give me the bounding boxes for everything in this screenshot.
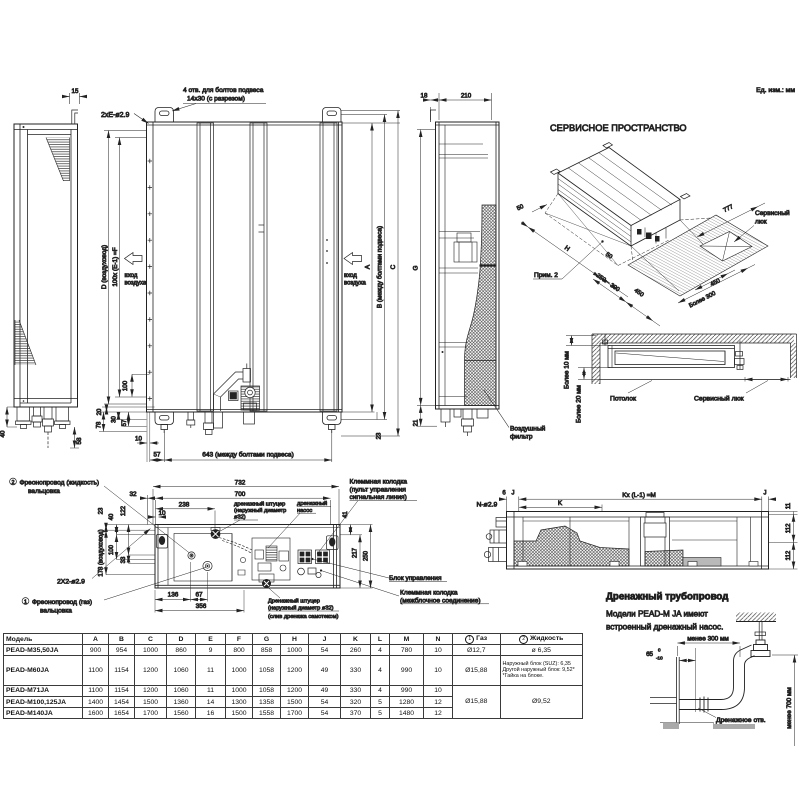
svg-text:Ед. изм.: мм: Ед. изм.: мм bbox=[756, 87, 795, 94]
svg-text:250: 250 bbox=[364, 550, 370, 561]
svg-text:Kx (L-1) =M: Kx (L-1) =M bbox=[622, 492, 656, 499]
svg-text:Фреонопровод (газ): Фреонопровод (газ) bbox=[32, 599, 92, 606]
svg-text:100: 100 bbox=[109, 544, 115, 555]
svg-text:65: 65 bbox=[646, 651, 653, 658]
svg-text:18: 18 bbox=[421, 93, 428, 100]
svg-text:57: 57 bbox=[122, 419, 128, 426]
svg-text:122: 122 bbox=[121, 505, 127, 516]
svg-text:57: 57 bbox=[154, 452, 161, 459]
svg-text:21: 21 bbox=[414, 419, 420, 426]
svg-text:B (между болтами подвеса): B (между болтами подвеса) bbox=[376, 226, 384, 308]
svg-text:217: 217 bbox=[353, 547, 359, 558]
svg-text:Клеммная колодка: Клеммная колодка bbox=[400, 590, 458, 597]
svg-text:ø32): ø32) bbox=[234, 515, 246, 521]
svg-text:Сервисный люк: Сервисный люк bbox=[694, 395, 744, 403]
svg-text:Блок управления: Блок управления bbox=[389, 575, 442, 582]
svg-text:238: 238 bbox=[179, 502, 190, 509]
svg-text:менее 300 мм: менее 300 мм bbox=[687, 636, 729, 643]
svg-text:67: 67 bbox=[195, 592, 203, 599]
svg-text:58: 58 bbox=[76, 437, 83, 444]
svg-text:насос: насос bbox=[297, 508, 312, 514]
svg-text:33: 33 bbox=[121, 556, 127, 563]
svg-text:Дренажный штуцер: Дренажный штуцер bbox=[268, 598, 320, 605]
svg-text:вальцовка: вальцовка bbox=[40, 607, 72, 614]
svg-text:встроенный дренажный насос.: встроенный дренажный насос. bbox=[606, 623, 723, 632]
svg-text:4 отв. для болтов подвеса: 4 отв. для болтов подвеса bbox=[183, 86, 264, 94]
svg-text:100: 100 bbox=[122, 380, 129, 391]
svg-text:(наружный диаметр: (наружный диаметр bbox=[234, 507, 286, 514]
svg-text:(межблочное соединение): (межблочное соединение) bbox=[400, 596, 481, 604]
svg-text:Более 10 мм: Более 10 мм bbox=[564, 351, 571, 389]
svg-text:Модели PEAD-M JA имеют: Модели PEAD-M JA имеют bbox=[606, 610, 708, 619]
svg-text:Более 300: Более 300 bbox=[688, 291, 717, 310]
svg-text:фильтр: фильтр bbox=[510, 434, 533, 441]
svg-text:A: A bbox=[365, 264, 372, 269]
svg-text:78: 78 bbox=[97, 421, 103, 428]
svg-text:10: 10 bbox=[135, 436, 142, 443]
svg-text:14x30 (с разрезом): 14x30 (с разрезом) bbox=[187, 96, 245, 103]
svg-text:Прим. 2: Прим. 2 bbox=[534, 272, 558, 279]
svg-text:D (воздуховод): D (воздуховод) bbox=[101, 245, 108, 289]
svg-text:23: 23 bbox=[99, 507, 105, 514]
svg-text:50: 50 bbox=[604, 252, 613, 261]
svg-text:СЕРВИСНОЕ ПРОСТРАНСТВО: СЕРВИСНОЕ ПРОСТРАНСТВО bbox=[550, 123, 687, 133]
svg-text:136: 136 bbox=[168, 592, 179, 599]
svg-text:178 (воздуховод): 178 (воздуховод) bbox=[99, 529, 105, 576]
svg-text:32: 32 bbox=[129, 491, 137, 498]
svg-text:210: 210 bbox=[461, 93, 472, 100]
svg-text:N-ø2.9: N-ø2.9 bbox=[477, 502, 498, 509]
svg-text:700: 700 bbox=[235, 491, 246, 498]
svg-text:250 ~ 300: 250 ~ 300 bbox=[595, 273, 621, 294]
svg-text:менее 700 мм: менее 700 мм bbox=[786, 687, 793, 729]
svg-text:дренажный штуцер: дренажный штуцер bbox=[234, 501, 285, 508]
svg-text:воздуха: воздуха bbox=[344, 281, 366, 287]
svg-text:15: 15 bbox=[72, 88, 79, 95]
svg-text:2X2-ø2.9: 2X2-ø2.9 bbox=[57, 579, 85, 586]
svg-text:G: G bbox=[413, 265, 420, 270]
svg-text:Клеммная колодка: Клеммная колодка bbox=[350, 479, 408, 486]
svg-text:777: 777 bbox=[723, 204, 735, 214]
svg-text:2xE-ø2.9: 2xE-ø2.9 bbox=[101, 112, 130, 119]
svg-text:11: 11 bbox=[786, 502, 792, 509]
svg-text:дренажный: дренажный bbox=[297, 500, 327, 507]
svg-text:вход: вход bbox=[344, 273, 357, 279]
svg-text:Воздушный: Воздушный bbox=[510, 425, 546, 433]
svg-text:вход: вход bbox=[125, 273, 138, 279]
svg-text:50: 50 bbox=[516, 204, 525, 213]
svg-text:1: 1 bbox=[24, 599, 27, 605]
svg-text:112: 112 bbox=[786, 523, 792, 533]
svg-text:J: J bbox=[764, 491, 767, 497]
svg-text:Потолок: Потолок bbox=[610, 396, 636, 403]
svg-text:30: 30 bbox=[112, 416, 118, 423]
svg-text:40: 40 bbox=[0, 430, 7, 437]
svg-text:732: 732 bbox=[235, 480, 246, 487]
svg-text:6: 6 bbox=[502, 491, 506, 497]
svg-text:вальцовка: вальцовка bbox=[28, 488, 60, 495]
svg-text:23: 23 bbox=[377, 432, 383, 439]
svg-text:450: 450 bbox=[633, 288, 645, 299]
svg-text:41: 41 bbox=[343, 511, 349, 518]
svg-text:(слив дренажа самотеком): (слив дренажа самотеком) bbox=[268, 614, 339, 620]
svg-text:C: C bbox=[390, 264, 397, 269]
svg-text:Фреонопровод (жидкость): Фреонопровод (жидкость) bbox=[20, 480, 100, 487]
svg-text:-10: -10 bbox=[656, 656, 663, 661]
svg-text:Более 20 мм: Более 20 мм bbox=[576, 385, 583, 423]
svg-text:2: 2 bbox=[12, 480, 15, 486]
svg-text:H: H bbox=[563, 245, 571, 254]
svg-text:643 (между болтами подвеса): 643 (между болтами подвеса) bbox=[202, 451, 294, 459]
svg-text:(пульт управления: (пульт управления bbox=[350, 486, 407, 493]
svg-text:Сервисный: Сервисный bbox=[755, 209, 790, 217]
svg-text:40: 40 bbox=[109, 513, 115, 520]
svg-text:20: 20 bbox=[97, 408, 103, 415]
svg-text:0: 0 bbox=[658, 648, 661, 653]
svg-text:K: K bbox=[558, 500, 563, 507]
svg-text:(наружный диаметр ø32): (наружный диаметр ø32) bbox=[268, 604, 334, 611]
svg-text:люк: люк bbox=[755, 219, 767, 226]
svg-text:450: 450 bbox=[710, 278, 722, 288]
svg-text:112: 112 bbox=[786, 550, 792, 560]
svg-text:356: 356 bbox=[196, 603, 207, 610]
svg-text:Дренажный трубопровод: Дренажный трубопровод bbox=[606, 592, 728, 603]
svg-text:сигнальная линия): сигнальная линия) bbox=[350, 494, 407, 501]
svg-text:100x (E-1) =F: 100x (E-1) =F bbox=[112, 247, 119, 286]
svg-text:10: 10 bbox=[158, 510, 166, 517]
svg-text:J: J bbox=[512, 491, 515, 497]
svg-text:воздуха: воздуха bbox=[125, 281, 147, 287]
svg-text:Дренажное отв.: Дренажное отв. bbox=[716, 717, 766, 724]
